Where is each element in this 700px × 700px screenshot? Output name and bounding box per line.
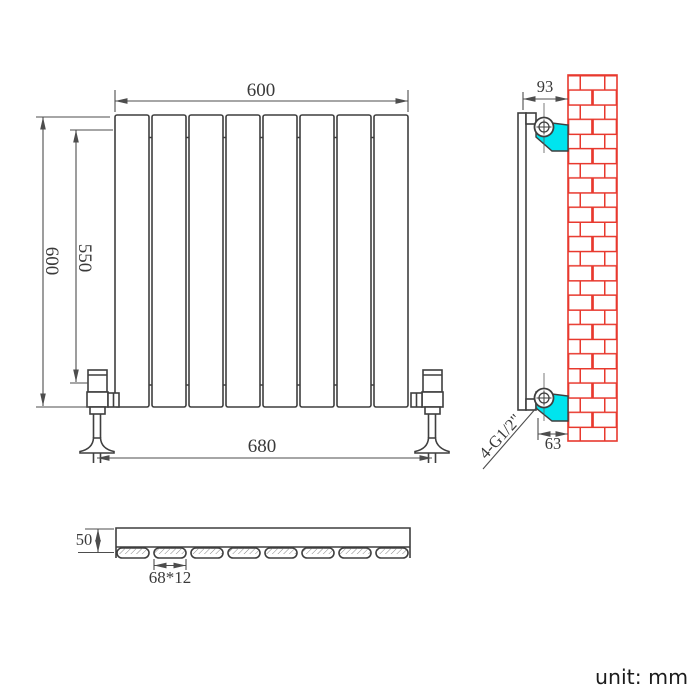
valve-body (87, 392, 108, 407)
valve-flange (90, 407, 105, 414)
radiator-panel (374, 115, 408, 407)
radiator-panel (263, 115, 297, 407)
dim-label-height: 600 (41, 247, 62, 276)
dim-label-bottom-offset: 63 (545, 434, 562, 453)
brick-wall-face (568, 75, 617, 441)
valve-head (423, 370, 442, 392)
valve-head (88, 370, 107, 392)
radiator-panel (189, 115, 223, 407)
dim-label-inner-height: 550 (74, 244, 95, 273)
radiator-side-profile (518, 113, 526, 410)
profile-top-lug (526, 113, 536, 124)
radiator-panel (226, 115, 260, 407)
bracket-screw-top-icon (535, 118, 554, 137)
dim-label-depth-top: 93 (537, 77, 554, 96)
radiator-panel (337, 115, 371, 407)
valve-body (422, 392, 443, 407)
radiator-drawing-canvas: 600 600 550 680 (0, 0, 700, 700)
dim-label-width: 600 (247, 80, 276, 101)
unit-note: unit: mm (595, 665, 688, 689)
bracket-screw-bottom-icon (535, 389, 554, 408)
brick-wall (568, 75, 617, 441)
technical-drawing-page: 600 600 550 680 (0, 0, 700, 700)
dim-label-panel-section: 68*12 (149, 568, 192, 587)
radiator-panel (152, 115, 186, 407)
radiator-panel (300, 115, 334, 407)
dim-label-depth: 50 (76, 530, 93, 549)
dim-label-valve-span: 680 (248, 436, 277, 457)
radiator-panel (115, 115, 149, 407)
valve-flange (425, 407, 440, 414)
